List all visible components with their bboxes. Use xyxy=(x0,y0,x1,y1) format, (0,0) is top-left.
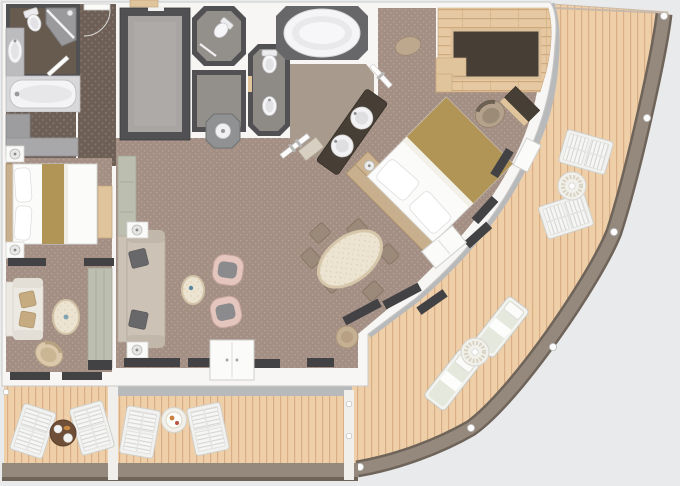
breakfast-table xyxy=(50,420,76,446)
sofa xyxy=(118,230,165,348)
round-table xyxy=(558,172,586,200)
bed-headboard xyxy=(6,164,13,244)
guest-bed-runner xyxy=(42,164,64,244)
master-wc xyxy=(248,44,290,136)
console-ledge-right xyxy=(84,258,114,266)
window-sill xyxy=(252,359,280,368)
guest-wardrobe-cabinet xyxy=(88,268,112,370)
window-sill xyxy=(307,358,334,367)
floor-plan-stage xyxy=(0,0,680,486)
oval-bathtub xyxy=(276,6,368,60)
nightstand-bottom xyxy=(6,242,24,258)
side-table-bottom xyxy=(127,342,148,358)
bidet-icon xyxy=(263,97,277,116)
luggage-bench xyxy=(130,0,158,7)
walk-in-closet xyxy=(120,0,190,140)
loveseat xyxy=(6,278,43,340)
window-sill-bottom-1 xyxy=(10,372,50,380)
guest-bathroom xyxy=(6,4,80,112)
desk-return-1 xyxy=(436,58,466,76)
corridor-carpet xyxy=(78,4,116,166)
console-ledge-left xyxy=(8,258,46,266)
tub-faucet-icon xyxy=(15,92,20,97)
coffee-table xyxy=(182,276,204,304)
round-table xyxy=(461,338,489,366)
guest-shower-room xyxy=(192,6,246,66)
balcony-railing-bottom-edge xyxy=(2,477,358,481)
living-balcony-door xyxy=(210,340,254,380)
vanity-basin xyxy=(206,114,240,148)
window-sill xyxy=(124,358,180,367)
toilet-icon xyxy=(262,50,277,73)
round-table xyxy=(162,408,187,433)
window-sill-bottom-2 xyxy=(62,372,102,380)
side-table-top xyxy=(127,222,148,238)
foot-bench xyxy=(98,186,112,238)
desk-return-2 xyxy=(436,74,452,92)
nightstand-top xyxy=(6,146,24,162)
floor-plan-svg xyxy=(0,0,680,486)
shower-head-icon xyxy=(67,10,73,16)
balcony-railing-bottom xyxy=(2,463,358,479)
towel-shelf xyxy=(248,76,252,92)
armchair-1 xyxy=(211,253,245,287)
